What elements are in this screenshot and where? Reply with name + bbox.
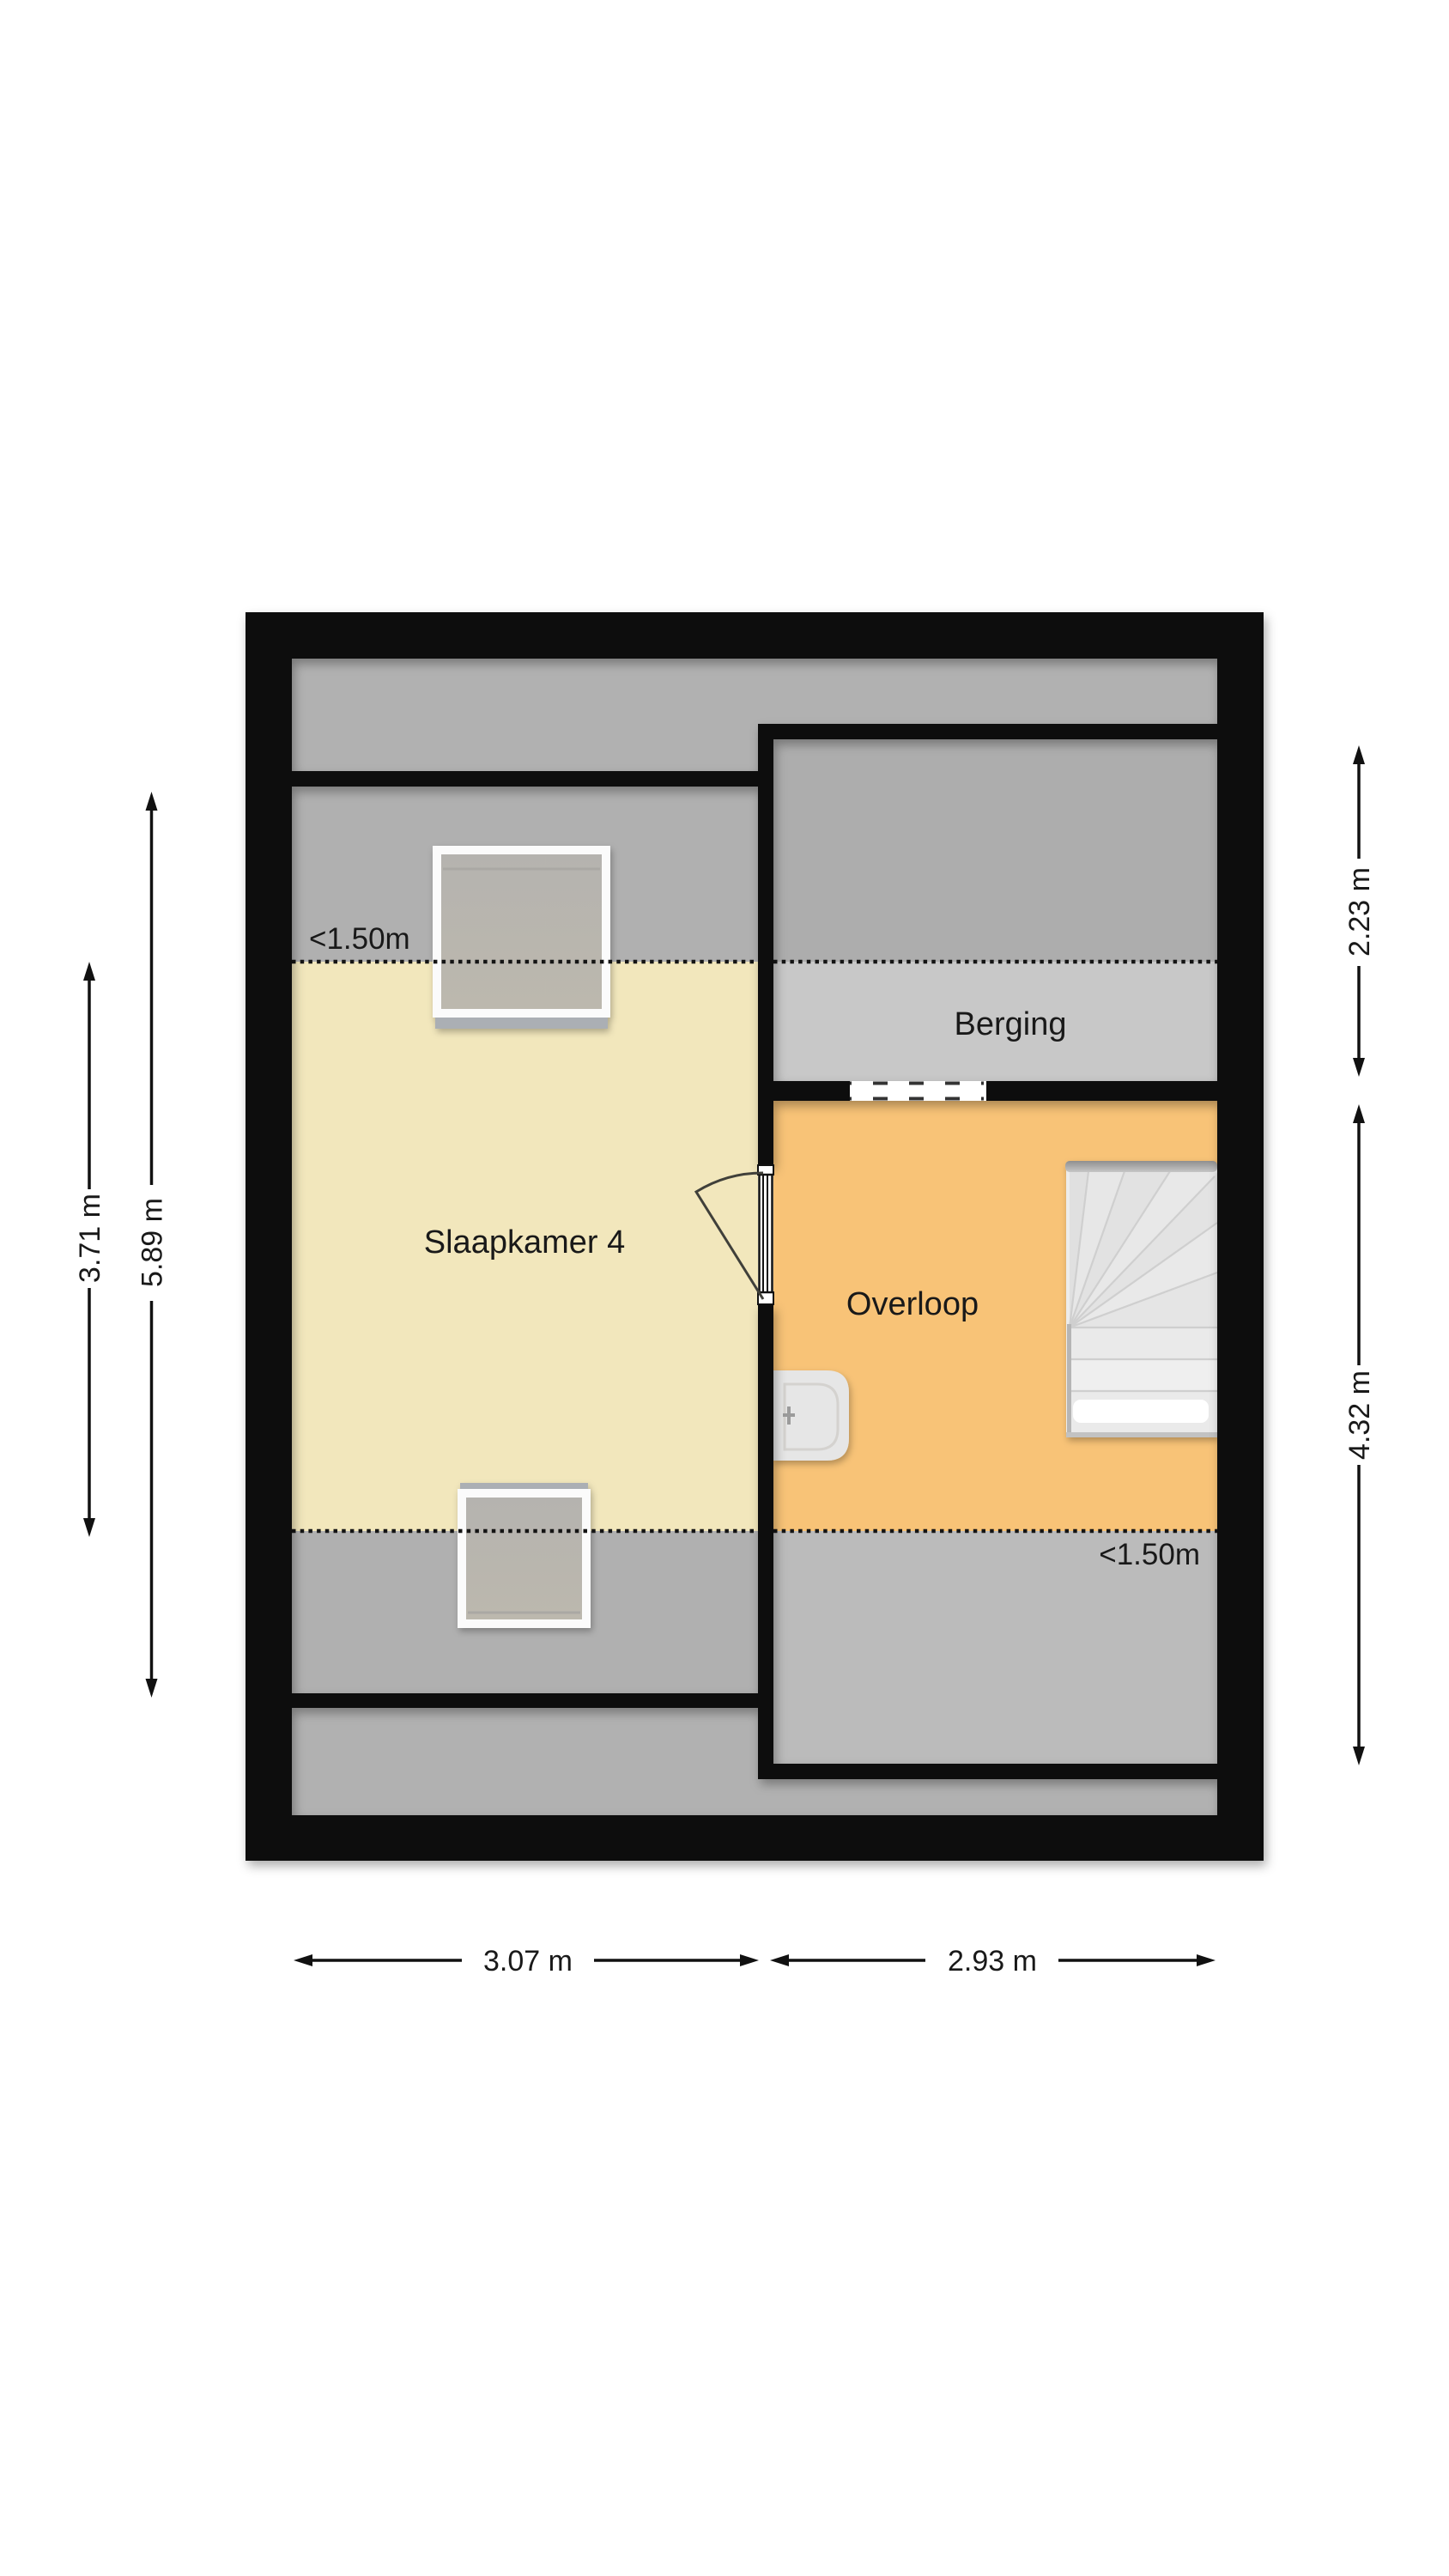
- svg-text:<1.50m: <1.50m: [309, 922, 410, 956]
- svg-text:<1.50m: <1.50m: [1099, 1538, 1200, 1571]
- svg-text:Slaapkamer 4: Slaapkamer 4: [424, 1224, 625, 1261]
- svg-text:Overloop: Overloop: [846, 1286, 979, 1322]
- svg-text:3.71 m: 3.71 m: [74, 1194, 106, 1283]
- svg-text:5.89 m: 5.89 m: [136, 1198, 169, 1287]
- svg-text:4.32 m: 4.32 m: [1343, 1370, 1376, 1460]
- svg-text:3.07 m: 3.07 m: [483, 1945, 573, 1978]
- svg-text:2.23 m: 2.23 m: [1343, 867, 1376, 957]
- svg-text:2.93 m: 2.93 m: [948, 1945, 1037, 1978]
- svg-text:Berging: Berging: [955, 1006, 1067, 1042]
